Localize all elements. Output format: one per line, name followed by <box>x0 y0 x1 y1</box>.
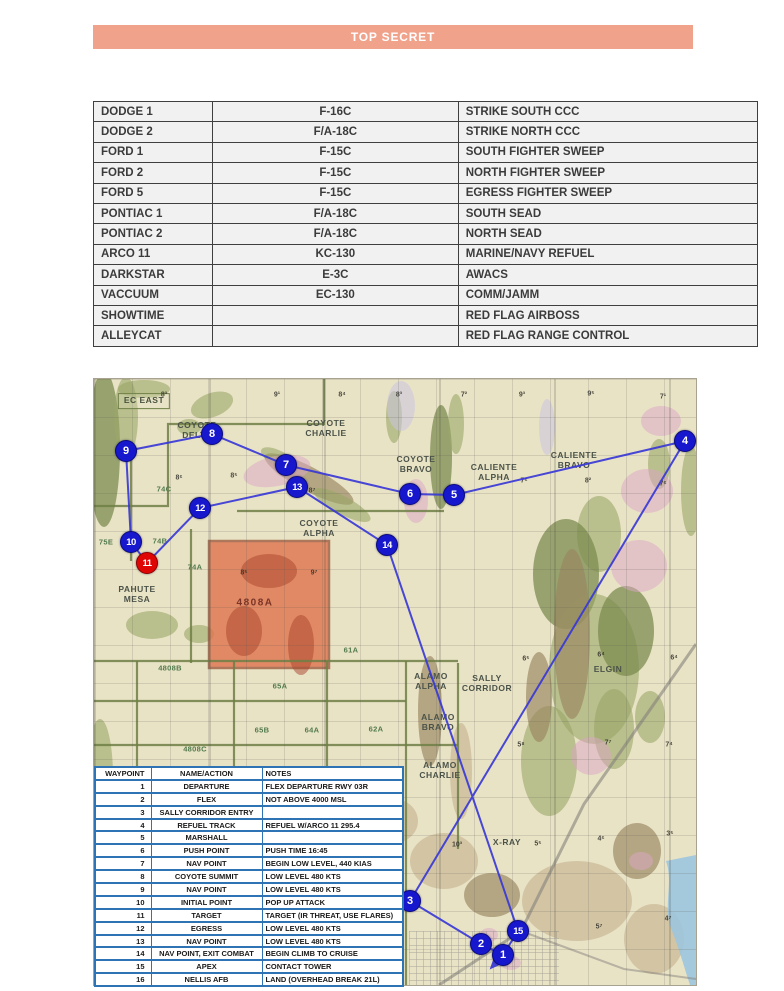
map-area-label: ELGIN <box>594 665 622 675</box>
waypoint-row: 11TARGETTARGET (IR THREAT, USE FLARES) <box>95 909 403 922</box>
elevation-mark: 8⁴ <box>338 392 345 399</box>
elevation-mark: 9⁷ <box>311 570 318 577</box>
map-range-code: 74A <box>188 563 203 572</box>
elevation-mark: 9⁵ <box>587 391 594 398</box>
waypoint-marker-11: 11 <box>136 552 158 574</box>
callsign-cell: DODGE 2 <box>94 122 213 142</box>
waypoint-notes-cell <box>262 806 403 819</box>
callsign-cell: FORD 2 <box>94 163 213 183</box>
classification-text: TOP SECRET <box>351 30 435 44</box>
role-cell: STRIKE SOUTH CCC <box>458 102 757 122</box>
role-cell: NORTH FIGHTER SWEEP <box>458 163 757 183</box>
waypoint-table-header: WAYPOINT <box>95 767 151 780</box>
flight-roster-table: DODGE 1F-16CSTRIKE SOUTH CCCDODGE 2F/A-1… <box>93 101 758 347</box>
elevation-mark: 4⁷ <box>665 916 672 923</box>
waypoint-marker-7: 7 <box>275 454 297 476</box>
elevation-mark: 7⁷ <box>605 740 612 747</box>
roster-row: PONTIAC 2F/A-18CNORTH SEAD <box>94 224 758 244</box>
waypoint-number-cell: 5 <box>95 831 151 844</box>
waypoint-name-cell: REFUEL TRACK <box>151 819 262 832</box>
waypoint-row: 13NAV POINTLOW LEVEL 480 KTS <box>95 935 403 948</box>
waypoint-number-cell: 4 <box>95 819 151 832</box>
aircraft-cell: KC-130 <box>212 244 458 264</box>
callsign-cell: DODGE 1 <box>94 102 213 122</box>
waypoint-name-cell: NAV POINT <box>151 883 262 896</box>
waypoint-notes-cell: LOW LEVEL 480 KTS <box>262 922 403 935</box>
waypoint-marker-14: 14 <box>376 534 398 556</box>
callsign-cell: PONTIAC 2 <box>94 224 213 244</box>
map-range-code: 65B <box>255 726 270 735</box>
map-range-code: 74C <box>157 485 172 494</box>
waypoint-number-cell: 15 <box>95 960 151 973</box>
map-area-label: SALLY CORRIDOR <box>462 674 512 694</box>
waypoint-notes-cell: LOW LEVEL 480 KTS <box>262 935 403 948</box>
role-cell: RED FLAG RANGE CONTROL <box>458 326 757 346</box>
elevation-mark: 3⁵ <box>666 831 673 838</box>
elevation-mark: 7² <box>461 392 467 399</box>
waypoint-marker-15: 15 <box>507 920 529 942</box>
elevation-mark: 9³ <box>519 392 525 399</box>
elevation-mark: 8⁶ <box>175 475 182 482</box>
waypoint-name-cell: APEX <box>151 960 262 973</box>
waypoint-marker-8: 8 <box>201 423 223 445</box>
waypoint-row: 16NELLIS AFBLAND (OVERHEAD BREAK 21L) <box>95 973 403 986</box>
aircraft-cell: EC-130 <box>212 285 458 305</box>
mission-map: EC EASTCOYOTE DELTACOYOTE CHARLIECOYOTE … <box>93 378 697 986</box>
roster-row: DODGE 1F-16CSTRIKE SOUTH CCC <box>94 102 758 122</box>
waypoint-name-cell: NAV POINT <box>151 935 262 948</box>
waypoint-notes-cell: LAND (OVERHEAD BREAK 21L) <box>262 973 403 986</box>
aircraft-cell <box>212 305 458 325</box>
elevation-mark: 7⁶ <box>520 478 527 485</box>
waypoint-marker-6: 6 <box>399 483 421 505</box>
callsign-cell: ARCO 11 <box>94 244 213 264</box>
waypoint-marker-5: 5 <box>443 484 465 506</box>
elevation-mark: 9¹ <box>274 392 280 399</box>
waypoint-row: 14NAV POINT, EXIT COMBATBEGIN CLIMB TO C… <box>95 947 403 960</box>
waypoint-notes-cell: PUSH TIME 16:45 <box>262 844 403 857</box>
map-range-code: 4808C <box>183 745 207 754</box>
waypoint-name-cell: FLEX <box>151 793 262 806</box>
waypoint-marker-13: 13 <box>286 476 308 498</box>
aircraft-cell: F-15C <box>212 142 458 162</box>
aircraft-cell: F-15C <box>212 183 458 203</box>
map-range-code: 61A <box>344 646 359 655</box>
waypoint-row: 9NAV POINTLOW LEVEL 480 KTS <box>95 883 403 896</box>
waypoint-row: 5MARSHALL <box>95 831 403 844</box>
map-range-code: 65A <box>273 682 288 691</box>
waypoint-number-cell: 1 <box>95 780 151 793</box>
elevation-mark: 10³ <box>452 842 462 849</box>
waypoint-number-cell: 16 <box>95 973 151 986</box>
callsign-cell: PONTIAC 1 <box>94 203 213 223</box>
roster-row: PONTIAC 1F/A-18CSOUTH SEAD <box>94 203 758 223</box>
waypoint-number-cell: 9 <box>95 883 151 896</box>
target-range-label: 4808A <box>237 598 274 609</box>
waypoint-notes-cell: REFUEL W/ARCO 11 295.4 <box>262 819 403 832</box>
waypoint-notes-cell: NOT ABOVE 4000 MSL <box>262 793 403 806</box>
waypoint-notes-cell: BEGIN LOW LEVEL, 440 KIAS <box>262 857 403 870</box>
elevation-mark: 8³ <box>161 392 167 399</box>
roster-row: ARCO 11KC-130MARINE/NAVY REFUEL <box>94 244 758 264</box>
waypoint-marker-9: 9 <box>115 440 137 462</box>
role-cell: NORTH SEAD <box>458 224 757 244</box>
waypoint-table-header: NAME/ACTION <box>151 767 262 780</box>
waypoint-row: 4REFUEL TRACKREFUEL W/ARCO 11 295.4 <box>95 819 403 832</box>
aircraft-cell: F-15C <box>212 163 458 183</box>
roster-row: FORD 5F-15CEGRESS FIGHTER SWEEP <box>94 183 758 203</box>
roster-row: ALLEYCATRED FLAG RANGE CONTROL <box>94 326 758 346</box>
waypoint-marker-4: 4 <box>674 430 696 452</box>
map-range-code: 74B <box>153 537 168 546</box>
elevation-mark: 5⁸ <box>517 742 524 749</box>
callsign-cell: SHOWTIME <box>94 305 213 325</box>
map-area-label: COYOTE ALPHA <box>300 519 339 539</box>
waypoint-name-cell: SALLY CORRIDOR ENTRY <box>151 806 262 819</box>
waypoint-row: 3SALLY CORRIDOR ENTRY <box>95 806 403 819</box>
roster-row: SHOWTIMERED FLAG AIRBOSS <box>94 305 758 325</box>
waypoint-number-cell: 11 <box>95 909 151 922</box>
waypoint-name-cell: NAV POINT <box>151 857 262 870</box>
waypoint-number-cell: 6 <box>95 844 151 857</box>
waypoint-row: 2FLEXNOT ABOVE 4000 MSL <box>95 793 403 806</box>
waypoint-notes-cell: POP UP ATTACK <box>262 896 403 909</box>
roster-row: VACCUUMEC-130COMM/JAMM <box>94 285 758 305</box>
aircraft-cell <box>212 326 458 346</box>
waypoint-number-cell: 8 <box>95 870 151 883</box>
waypoint-notes-cell: FLEX DEPARTURE RWY 03R <box>262 780 403 793</box>
role-cell: EGRESS FIGHTER SWEEP <box>458 183 757 203</box>
waypoint-notes-cell: LOW LEVEL 480 KTS <box>262 870 403 883</box>
briefing-page: { "banner": { "text": "TOP SECRET", "bg_… <box>0 0 784 991</box>
waypoint-name-cell: NAV POINT, EXIT COMBAT <box>151 947 262 960</box>
role-cell: STRIKE NORTH CCC <box>458 122 757 142</box>
map-area-label: COYOTE CHARLIE <box>305 419 346 439</box>
map-area-label: CALIENTE BRAVO <box>551 451 598 471</box>
waypoint-number-cell: 10 <box>95 896 151 909</box>
map-range-code: 4808B <box>158 664 182 673</box>
roster-row: FORD 1F-15CSOUTH FIGHTER SWEEP <box>94 142 758 162</box>
waypoint-number-cell: 12 <box>95 922 151 935</box>
elevation-mark: 8⁷ <box>309 488 316 495</box>
waypoint-name-cell: DEPARTURE <box>151 780 262 793</box>
map-range-code: 62A <box>369 725 384 734</box>
classification-banner: TOP SECRET <box>93 25 693 49</box>
waypoint-row: 12EGRESSLOW LEVEL 480 KTS <box>95 922 403 935</box>
waypoint-marker-12: 12 <box>189 497 211 519</box>
waypoint-number-cell: 2 <box>95 793 151 806</box>
elevation-mark: 5⁵ <box>534 841 541 848</box>
elevation-mark: 6⁴ <box>670 655 677 662</box>
waypoint-notes-cell: TARGET (IR THREAT, USE FLARES) <box>262 909 403 922</box>
map-area-label: X-RAY <box>493 838 521 848</box>
waypoint-name-cell: TARGET <box>151 909 262 922</box>
callsign-cell: FORD 5 <box>94 183 213 203</box>
map-area-label: ALAMO ALPHA <box>414 672 448 692</box>
aircraft-cell: E-3C <box>212 265 458 285</box>
waypoint-marker-10: 10 <box>120 531 142 553</box>
callsign-cell: ALLEYCAT <box>94 326 213 346</box>
elevation-mark: 8² <box>585 478 591 485</box>
map-range-code: 64A <box>305 726 320 735</box>
role-cell: SOUTH FIGHTER SWEEP <box>458 142 757 162</box>
waypoint-row: 6PUSH POINTPUSH TIME 16:45 <box>95 844 403 857</box>
map-area-label: ALAMO BRAVO <box>421 713 455 733</box>
map-range-code: 75E <box>99 538 113 547</box>
aircraft-cell: F/A-18C <box>212 224 458 244</box>
waypoint-name-cell: PUSH POINT <box>151 844 262 857</box>
waypoint-marker-2: 2 <box>470 933 492 955</box>
map-area-label: PAHUTE MESA <box>118 585 155 605</box>
role-cell: RED FLAG AIRBOSS <box>458 305 757 325</box>
waypoint-row: 1DEPARTUREFLEX DEPARTURE RWY 03R <box>95 780 403 793</box>
callsign-cell: FORD 1 <box>94 142 213 162</box>
roster-row: DODGE 2F/A-18CSTRIKE NORTH CCC <box>94 122 758 142</box>
aircraft-cell: F/A-18C <box>212 122 458 142</box>
elevation-mark: 8⁵ <box>240 570 247 577</box>
waypoint-number-cell: 7 <box>95 857 151 870</box>
waypoint-name-cell: INITIAL POINT <box>151 896 262 909</box>
role-cell: SOUTH SEAD <box>458 203 757 223</box>
elevation-mark: 6⁵ <box>522 656 529 663</box>
waypoint-name-cell: EGRESS <box>151 922 262 935</box>
aircraft-cell: F/A-18C <box>212 203 458 223</box>
callsign-cell: DARKSTAR <box>94 265 213 285</box>
elevation-mark: 6⁴ <box>597 652 604 659</box>
waypoint-name-cell: COYOTE SUMMIT <box>151 870 262 883</box>
roster-row: DARKSTARE-3CAWACS <box>94 265 758 285</box>
role-cell: COMM/JAMM <box>458 285 757 305</box>
elevation-mark: 7¹ <box>660 394 666 401</box>
waypoint-row: 8COYOTE SUMMITLOW LEVEL 480 KTS <box>95 870 403 883</box>
aircraft-cell: F-16C <box>212 102 458 122</box>
waypoint-table-body: 1DEPARTUREFLEX DEPARTURE RWY 03R2FLEXNOT… <box>95 780 403 986</box>
waypoint-number-cell: 14 <box>95 947 151 960</box>
waypoint-notes-cell: LOW LEVEL 480 KTS <box>262 883 403 896</box>
waypoint-table-header: NOTES <box>262 767 403 780</box>
role-cell: AWACS <box>458 265 757 285</box>
waypoint-marker-1: 1 <box>492 944 514 966</box>
map-area-label: CALIENTE ALPHA <box>471 463 518 483</box>
waypoint-row: 10INITIAL POINTPOP UP ATTACK <box>95 896 403 909</box>
roster-row: FORD 2F-15CNORTH FIGHTER SWEEP <box>94 163 758 183</box>
waypoint-notes-cell: BEGIN CLIMB TO CRUISE <box>262 947 403 960</box>
waypoint-number-cell: 13 <box>95 935 151 948</box>
roster-table-body: DODGE 1F-16CSTRIKE SOUTH CCCDODGE 2F/A-1… <box>94 102 758 347</box>
waypoint-notes-cell <box>262 831 403 844</box>
elevation-mark: 8⁵ <box>230 473 237 480</box>
waypoint-row: 15APEXCONTACT TOWER <box>95 960 403 973</box>
callsign-cell: VACCUUM <box>94 285 213 305</box>
elevation-mark: 4⁶ <box>597 836 604 843</box>
waypoint-number-cell: 3 <box>95 806 151 819</box>
elevation-mark: 7⁶ <box>659 481 666 488</box>
waypoint-name-cell: NELLIS AFB <box>151 973 262 986</box>
role-cell: MARINE/NAVY REFUEL <box>458 244 757 264</box>
waypoint-name-cell: MARSHALL <box>151 831 262 844</box>
elevation-mark: 5⁷ <box>596 924 603 931</box>
waypoint-table: WAYPOINTNAME/ACTIONNOTES 1DEPARTUREFLEX … <box>94 766 404 987</box>
waypoint-row: 7NAV POINTBEGIN LOW LEVEL, 440 KIAS <box>95 857 403 870</box>
waypoint-table-head: WAYPOINTNAME/ACTIONNOTES <box>95 767 403 780</box>
waypoint-table-header-row: WAYPOINTNAME/ACTIONNOTES <box>95 767 403 780</box>
map-area-label: ALAMO CHARLIE <box>419 761 460 781</box>
elevation-mark: 7⁴ <box>665 742 672 749</box>
waypoint-notes-cell: CONTACT TOWER <box>262 960 403 973</box>
map-area-label: COYOTE BRAVO <box>397 455 436 475</box>
elevation-mark: 8³ <box>396 392 402 399</box>
